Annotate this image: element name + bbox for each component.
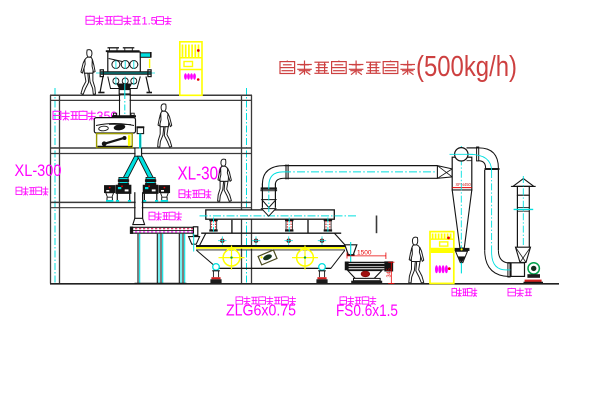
svg-text:FS0.6x1.5: FS0.6x1.5: [336, 302, 398, 320]
svg-text:ZLG6x0.75: ZLG6x0.75: [226, 303, 296, 320]
svg-text:345: 345: [386, 268, 392, 277]
svg-text:1500: 1500: [357, 249, 372, 256]
svg-text:1.5: 1.5: [142, 16, 157, 28]
svg-text:XL-300: XL-300: [15, 161, 62, 180]
svg-text:(500kg/h): (500kg/h): [416, 51, 517, 83]
svg-text:XFN450: XFN450: [456, 182, 472, 187]
